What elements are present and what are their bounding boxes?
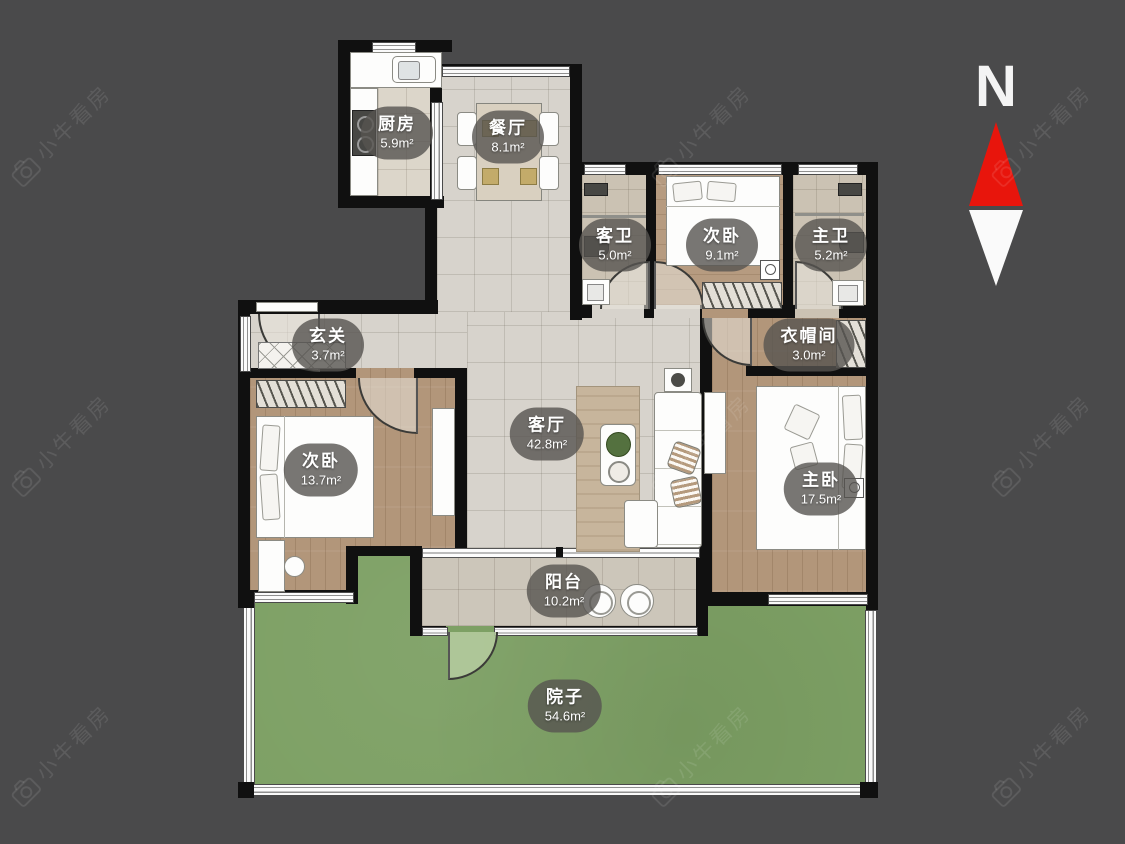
tray <box>608 461 630 483</box>
bathroom-sink-basin <box>838 285 858 302</box>
room-name: 次卧 <box>301 451 341 473</box>
room-area: 10.2m² <box>544 594 584 611</box>
wall-segment <box>425 196 437 314</box>
room-area: 8.1m² <box>489 140 527 157</box>
tv-console <box>432 408 455 516</box>
room-label-yard: 院子 54.6m² <box>528 680 602 733</box>
room-name: 主卧 <box>801 470 841 492</box>
wall-segment <box>696 546 708 636</box>
compass-north-label: N <box>938 58 1054 116</box>
window <box>658 164 782 175</box>
room-label-master-bedroom: 主卧 17.5m² <box>784 463 858 516</box>
wardrobe <box>702 282 782 309</box>
watermark-text: 小牛看房 <box>1008 387 1097 476</box>
window <box>798 164 858 175</box>
fence-rail <box>243 600 255 792</box>
room-label-kitchen: 厨房 5.9m² <box>361 107 433 160</box>
room-area: 17.5m² <box>801 492 841 509</box>
compass-arrow-icon <box>967 122 1025 287</box>
desk <box>258 540 285 592</box>
watermark-text: 小牛看房 <box>1008 697 1097 786</box>
fence-post <box>238 782 254 798</box>
balcony-rail <box>494 627 698 636</box>
placemat <box>520 168 537 185</box>
washing-machine-door <box>627 591 651 615</box>
kitchen-sink-basin <box>398 61 420 80</box>
pillow <box>842 395 863 441</box>
room-name: 客厅 <box>527 415 567 437</box>
room-area: 42.8m² <box>527 437 567 454</box>
room-name: 主卫 <box>812 226 850 248</box>
fence-post <box>860 782 878 798</box>
camera-icon <box>7 773 42 808</box>
watermark: 小牛看房 <box>984 387 1097 500</box>
wall-segment <box>783 162 793 318</box>
bathroom-sink-basin <box>587 284 604 301</box>
watermark-text: 小牛看房 <box>668 77 757 166</box>
wall-segment <box>570 64 582 320</box>
window <box>442 66 570 77</box>
room-name: 客卫 <box>596 226 634 248</box>
room-name: 衣帽间 <box>781 326 838 348</box>
room-name: 院子 <box>545 687 585 709</box>
pillow <box>672 181 703 203</box>
dining-chair <box>457 156 477 190</box>
room-name: 玄关 <box>309 326 347 348</box>
desk-chair <box>284 556 305 577</box>
wardrobe <box>256 380 346 408</box>
room-area: 3.0m² <box>781 348 838 365</box>
watermark: 小牛看房 <box>4 697 117 810</box>
shower-fixture <box>838 183 862 196</box>
tv-console <box>704 392 726 474</box>
camera-icon <box>987 773 1022 808</box>
room-label-entry: 玄关 3.7m² <box>292 319 364 372</box>
room-area: 13.7m² <box>301 473 341 490</box>
camera-icon <box>7 153 42 188</box>
room-area: 3.7m² <box>309 348 347 365</box>
watermark-text: 小牛看房 <box>28 387 117 476</box>
window <box>768 594 868 605</box>
room-label-bedroom-left: 次卧 13.7m² <box>284 444 358 497</box>
compass: N <box>938 58 1054 298</box>
room-area: 5.9m² <box>378 136 416 153</box>
watermark: 小牛看房 <box>4 387 117 500</box>
watermark: 小牛看房 <box>4 77 117 190</box>
room-name: 阳台 <box>544 572 584 594</box>
blanket-line <box>666 206 780 207</box>
sofa-chaise <box>624 500 658 548</box>
watermark-text: 小牛看房 <box>28 697 117 786</box>
room-name: 厨房 <box>378 114 416 136</box>
camera-icon <box>7 463 42 498</box>
room-area: 54.6m² <box>545 709 585 726</box>
room-name: 次卧 <box>703 226 741 248</box>
wall-segment <box>455 368 467 554</box>
window <box>254 592 354 603</box>
master-bath-divider <box>795 213 864 216</box>
watermark: 小牛看房 <box>984 697 1097 810</box>
shower-fixture <box>584 183 608 196</box>
room-label-dining: 餐厅 8.1m² <box>472 111 544 164</box>
room-label-guest-bath: 客卫 5.0m² <box>579 219 651 272</box>
plant-small <box>671 373 685 387</box>
room-area: 9.1m² <box>703 248 741 265</box>
pillow <box>259 473 280 520</box>
dining-chair <box>539 156 559 190</box>
sliding-door-cap <box>556 547 563 557</box>
ottoman <box>669 475 702 508</box>
room-label-master-bath: 主卫 5.2m² <box>795 219 867 272</box>
room-area: 5.0m² <box>596 248 634 265</box>
watermark-text: 小牛看房 <box>28 77 117 166</box>
room-name: 餐厅 <box>489 118 527 140</box>
room-label-cloakroom: 衣帽间 3.0m² <box>764 319 855 372</box>
pillow <box>259 424 280 471</box>
camera-icon <box>987 463 1022 498</box>
wall-segment <box>338 40 350 208</box>
balcony-rail <box>422 627 448 636</box>
wall-segment <box>410 546 422 636</box>
placemat <box>482 168 499 185</box>
fence-rail <box>243 784 877 796</box>
window <box>584 164 626 175</box>
room-area: 5.2m² <box>812 248 850 265</box>
wall-segment <box>866 162 878 610</box>
entry-door-leaf <box>256 302 318 312</box>
ac-unit <box>760 260 780 280</box>
fence-rail <box>865 610 877 792</box>
pillow <box>706 181 737 202</box>
floorplan-canvas: 厨房 5.9m² 餐厅 8.1m² 客卫 5.0m² 次卧 9.1m² 主卫 5… <box>0 0 1125 844</box>
room-label-bedroom-top: 次卧 9.1m² <box>686 219 758 272</box>
window <box>240 316 251 372</box>
room-label-balcony: 阳台 10.2m² <box>527 565 601 618</box>
room-label-living: 客厅 42.8m² <box>510 408 584 461</box>
kitchen-sliding-door <box>431 102 443 200</box>
fence-post <box>238 592 254 608</box>
plant <box>606 432 631 457</box>
